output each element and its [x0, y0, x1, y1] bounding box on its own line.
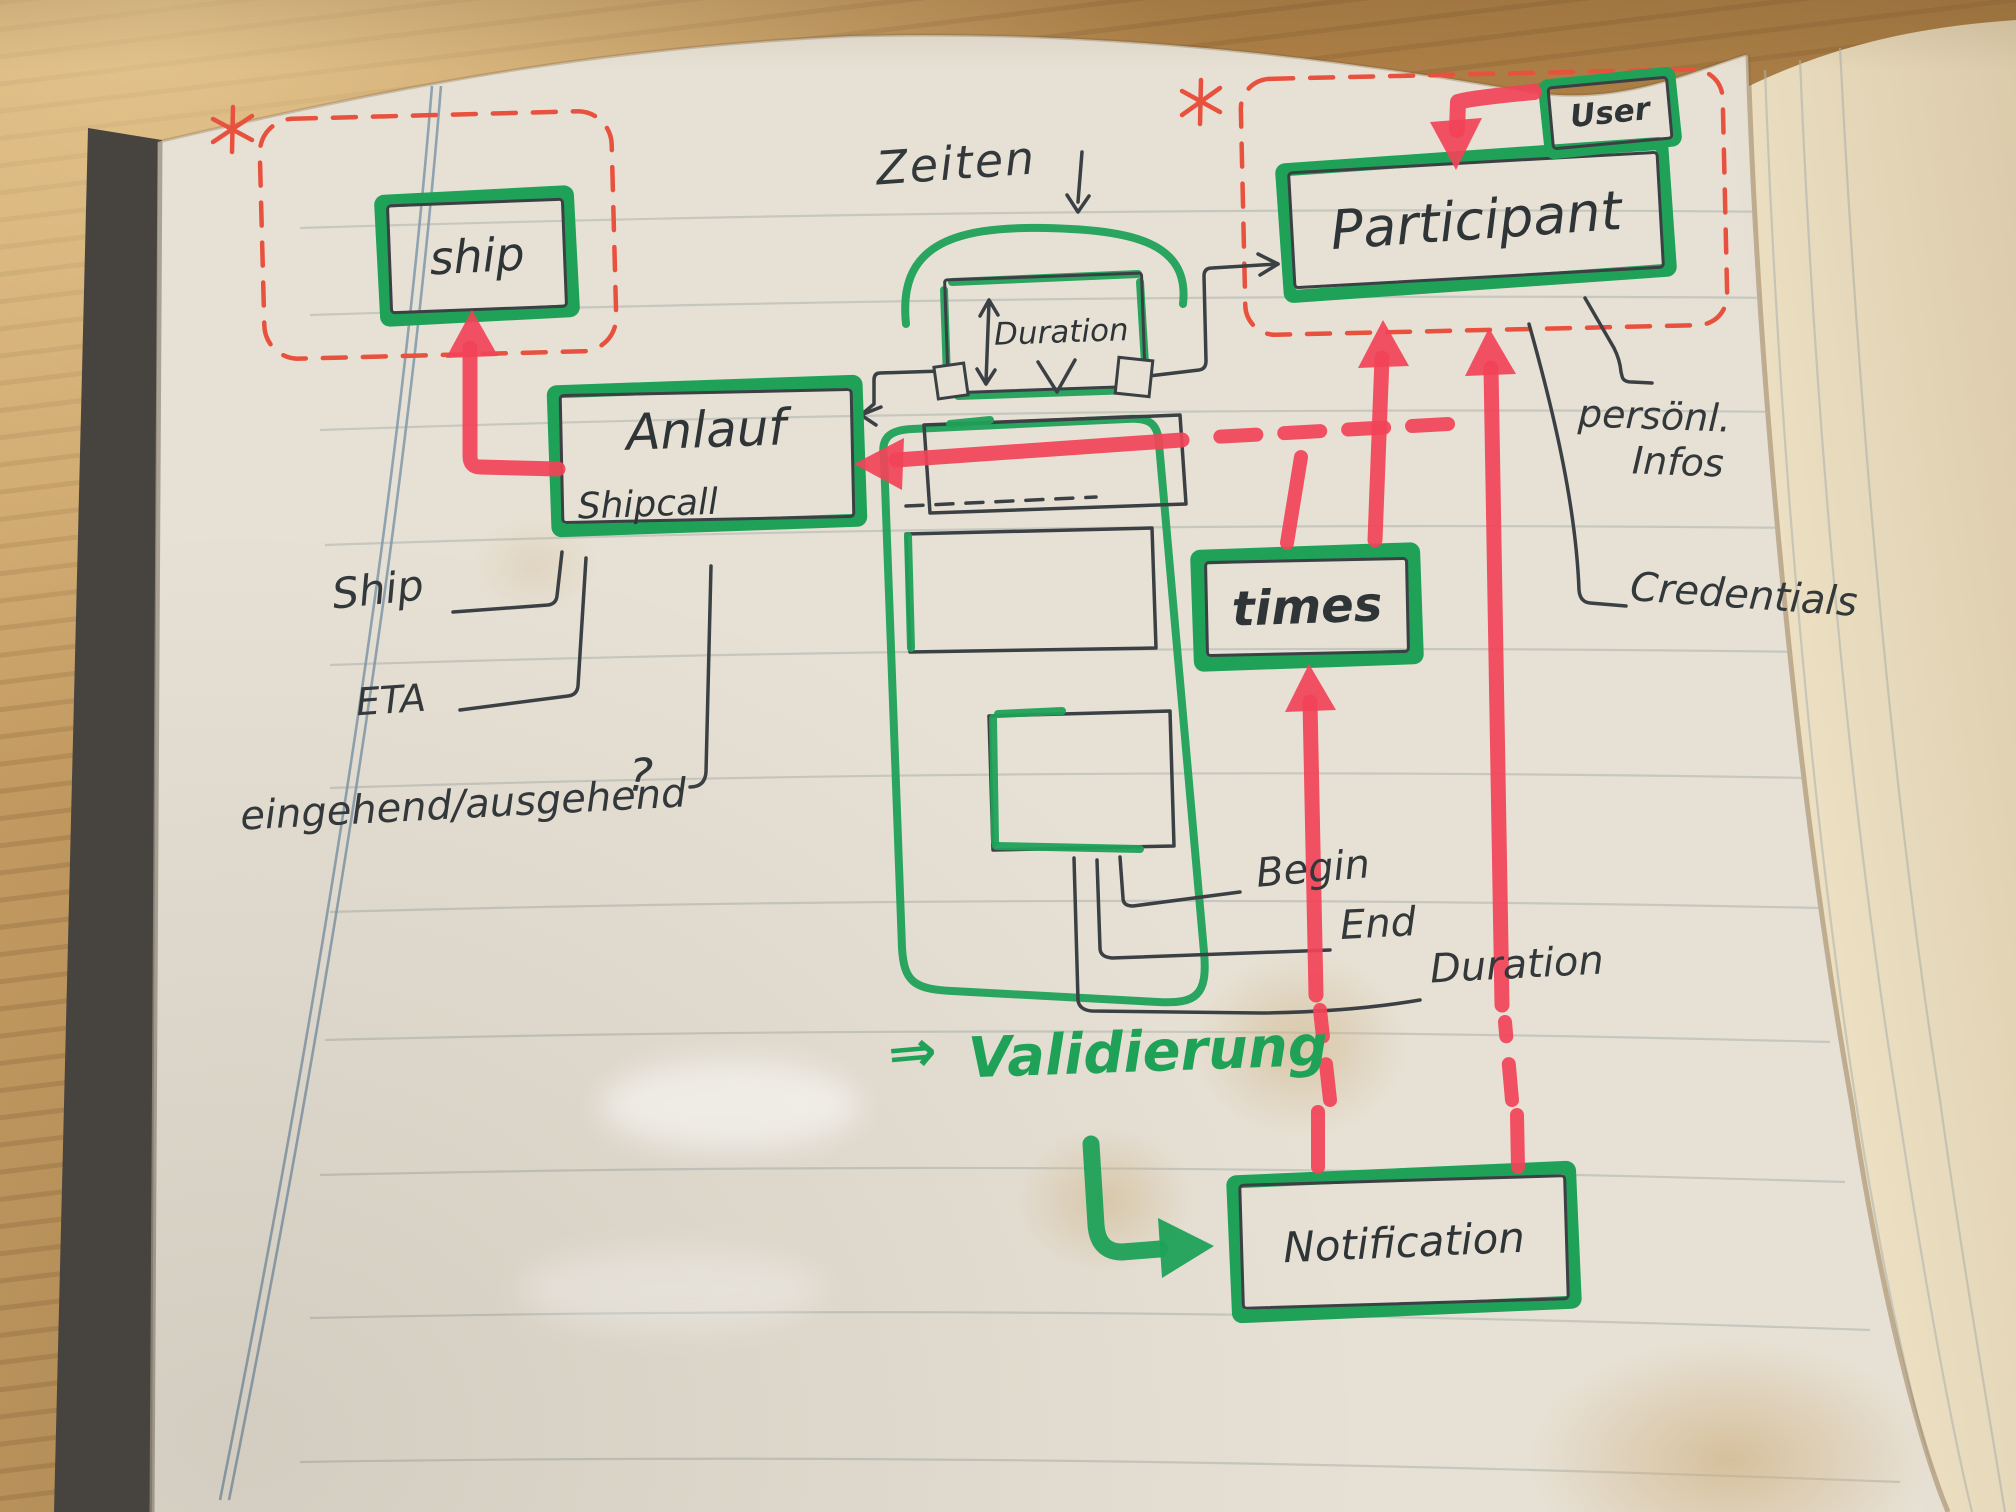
notebook-photo: ship Anlauf Shipcall Duration Participan… [0, 0, 2016, 1512]
note-ship-attr: Ship [330, 560, 426, 618]
connector-anchor-squares [934, 357, 1153, 399]
zeiten-down-arrow-icon [1067, 152, 1089, 212]
note-zeiten: Zeiten [874, 130, 1037, 195]
diagram-overlay [0, 0, 2016, 1512]
validierung-arrow-icon: ⇒ [885, 1016, 939, 1088]
note-question-mark: ? [626, 747, 654, 803]
red-arrow-notification-to-times [1285, 664, 1336, 1167]
red-arrow-shipcall-to-ship [446, 310, 558, 469]
asterisk-icon [213, 107, 252, 152]
note-personal-line2: Infos [1631, 438, 1724, 485]
note-validierung: Validierung [967, 1014, 1329, 1092]
green-arrow-to-notification [1091, 1144, 1214, 1278]
note-personal-line1: persönl. [1577, 391, 1731, 440]
red-arrow-times-column-to-shipcall [854, 424, 1448, 490]
duration-updown-arrow-icon [977, 300, 1075, 392]
note-eta-attr: ETA [355, 676, 428, 725]
red-arrow-notification-to-participant [1465, 328, 1518, 1167]
note-end-attr: End [1339, 899, 1417, 949]
red-arrow-user-to-participant [1430, 92, 1534, 170]
asterisk-icon [1182, 80, 1220, 124]
note-duration-attr: Duration [1429, 937, 1605, 992]
